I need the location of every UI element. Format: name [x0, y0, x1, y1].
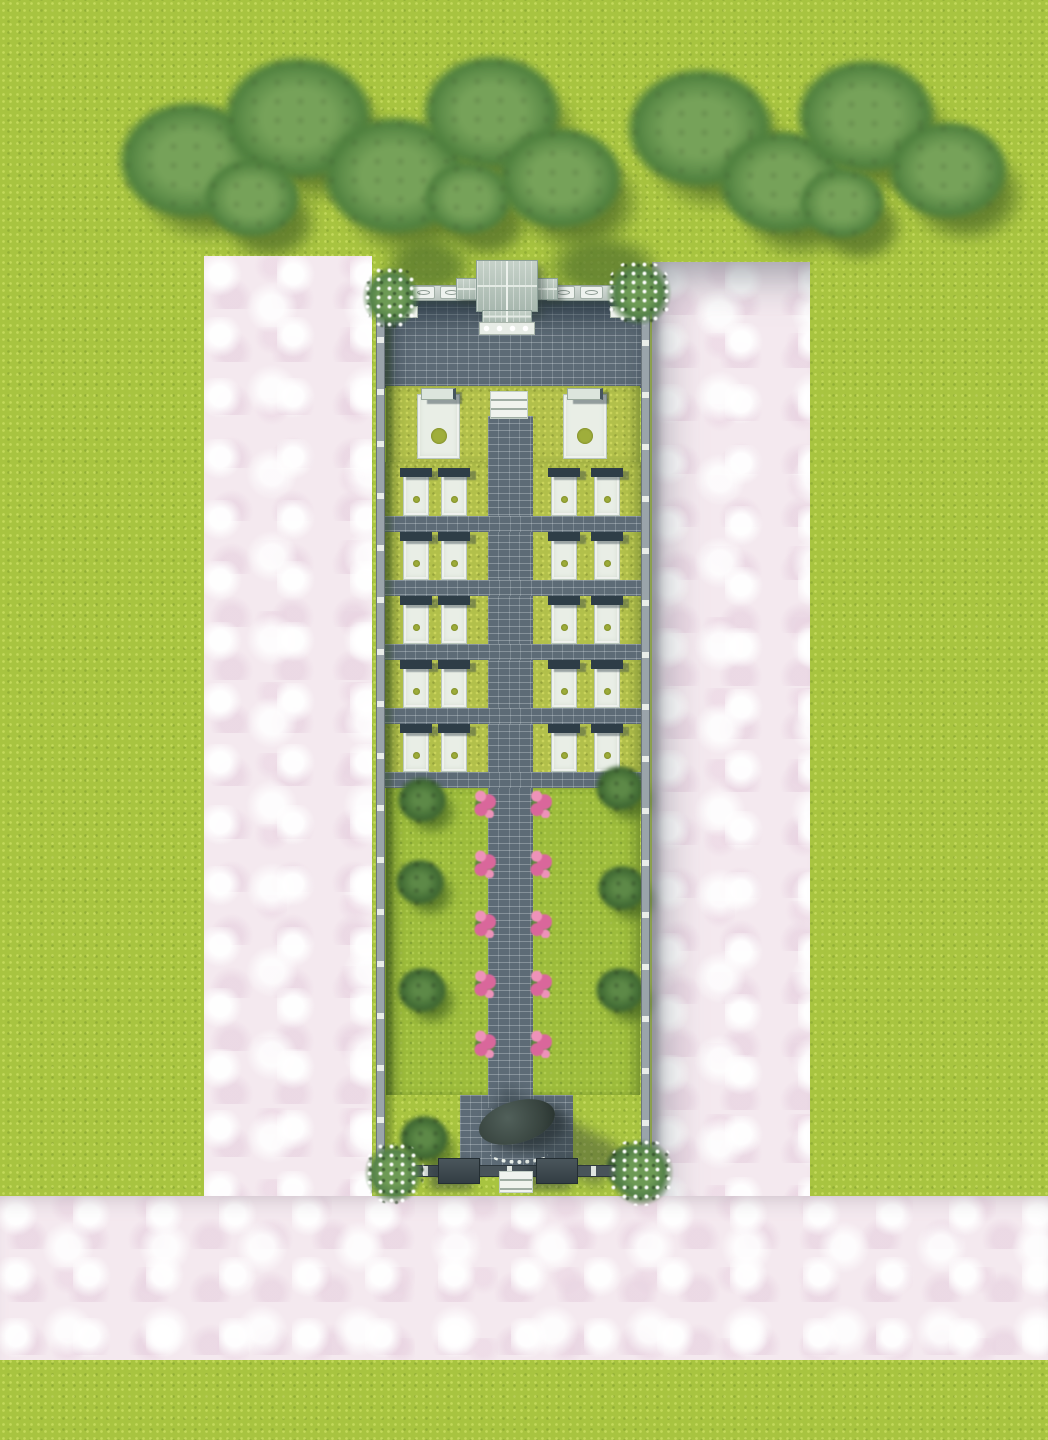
grave-dot — [413, 560, 420, 567]
grave-headstone — [548, 532, 580, 541]
grave-dot — [561, 624, 568, 631]
garden-tree — [396, 966, 448, 1014]
grave-slab — [403, 600, 429, 644]
tree-canopy — [202, 157, 302, 239]
tree-canopy — [422, 160, 514, 235]
flower-bush — [530, 1030, 552, 1058]
grave-row-strip — [384, 580, 642, 596]
grave-headstone — [400, 660, 432, 669]
monument-slab — [563, 394, 607, 459]
grave-dot — [413, 752, 420, 759]
grave-plot — [551, 532, 577, 580]
grave-dot — [604, 624, 611, 631]
grave-slab — [551, 600, 577, 644]
entrance-gate-roof — [476, 260, 538, 312]
grave-plot — [551, 468, 577, 516]
grave-dot — [451, 752, 458, 759]
tree-canopy — [886, 119, 1010, 221]
grave-headstone — [438, 596, 470, 605]
garden-tree — [394, 858, 446, 906]
grave-headstone — [548, 596, 580, 605]
garden-tree — [396, 776, 448, 824]
grave-dot — [604, 688, 611, 695]
corner-flower-bush — [364, 1142, 424, 1204]
grave-headstone — [548, 468, 580, 477]
grave-plot — [441, 468, 467, 516]
grave-slab — [403, 536, 429, 580]
grave-slab — [551, 728, 577, 772]
grave-row-strip — [384, 708, 642, 724]
grave-plot — [551, 596, 577, 644]
garden-tree — [594, 966, 646, 1014]
bottom-gate-block — [438, 1158, 480, 1184]
exit-steps — [499, 1171, 533, 1193]
pavement-bottom-walkway — [0, 1196, 1048, 1360]
entrance-steps — [490, 391, 528, 419]
perimeter-wall-right — [641, 288, 650, 1187]
monument-slab — [417, 394, 460, 459]
grave-slab — [594, 536, 620, 580]
grave-slab — [441, 472, 467, 516]
pavement-left-walkway — [204, 256, 372, 1360]
grave-headstone — [591, 724, 623, 733]
grave-plot — [594, 596, 620, 644]
grave-headstone — [548, 724, 580, 733]
grave-slab — [551, 472, 577, 516]
corner-flower-bush — [362, 266, 420, 328]
grave-slab — [441, 664, 467, 708]
grave-plot — [441, 660, 467, 708]
grave-headstone — [400, 468, 432, 477]
grave-headstone — [591, 660, 623, 669]
flower-bush — [530, 850, 552, 878]
grave-headstone — [400, 724, 432, 733]
grave-plot — [403, 596, 429, 644]
bottom-gate-block — [536, 1158, 578, 1184]
flower-bush — [474, 790, 496, 818]
flower-bush — [474, 1030, 496, 1058]
flower-bush — [474, 910, 496, 938]
monument-headstone — [421, 388, 456, 400]
grave-dot — [561, 752, 568, 759]
tree-canopy — [495, 125, 625, 232]
monument-dot — [431, 428, 447, 444]
grave-plot — [403, 532, 429, 580]
grave-slab — [594, 600, 620, 644]
grave-slab — [594, 664, 620, 708]
wall-ornament-panel — [580, 286, 603, 299]
grave-dot — [451, 688, 458, 695]
grave-row-strip — [384, 644, 642, 660]
grave-dot — [561, 688, 568, 695]
grave-dot — [413, 624, 420, 631]
grave-dot — [451, 624, 458, 631]
corner-flower-bush — [608, 1138, 674, 1206]
flower-bush — [530, 910, 552, 938]
grave-dot — [561, 560, 568, 567]
monument-dot — [577, 428, 593, 444]
grave-plot — [403, 468, 429, 516]
grave-slab — [594, 472, 620, 516]
flower-bush — [530, 790, 552, 818]
garden-tree — [594, 764, 646, 812]
flower-bush — [474, 850, 496, 878]
grave-plot — [551, 660, 577, 708]
grave-dot — [604, 496, 611, 503]
monument-plot — [417, 388, 460, 459]
corner-flower-bush — [606, 260, 672, 326]
monument-plot — [563, 388, 607, 459]
cemetery-compound — [372, 260, 654, 1195]
grave-plot — [403, 724, 429, 772]
grave-plot — [594, 468, 620, 516]
tree-canopy — [797, 166, 887, 240]
grave-headstone — [400, 596, 432, 605]
grave-headstone — [400, 532, 432, 541]
grave-slab — [403, 472, 429, 516]
grave-row-strip — [384, 516, 642, 532]
grave-headstone — [591, 596, 623, 605]
grave-plot — [441, 724, 467, 772]
grave-dot — [561, 496, 568, 503]
flower-bush — [530, 970, 552, 998]
grave-slab — [551, 664, 577, 708]
grave-slab — [403, 664, 429, 708]
grave-dot — [413, 496, 420, 503]
grave-plot — [551, 724, 577, 772]
grave-slab — [441, 728, 467, 772]
grave-plot — [594, 532, 620, 580]
grave-headstone — [591, 532, 623, 541]
grave-headstone — [438, 532, 470, 541]
grave-plot — [594, 660, 620, 708]
grave-slab — [441, 600, 467, 644]
flower-bush — [474, 970, 496, 998]
grave-slab — [551, 536, 577, 580]
grave-headstone — [548, 660, 580, 669]
perimeter-wall-left — [376, 285, 385, 1187]
grave-headstone — [591, 468, 623, 477]
grave-slab — [441, 536, 467, 580]
grave-headstone — [438, 724, 470, 733]
grave-plot — [441, 532, 467, 580]
grave-headstone — [438, 468, 470, 477]
grave-dot — [413, 688, 420, 695]
aerial-cemetery-render — [0, 0, 1048, 1440]
grave-headstone — [438, 660, 470, 669]
grave-dot — [451, 560, 458, 567]
grave-plot — [403, 660, 429, 708]
gate-porch-base — [479, 322, 535, 335]
grave-dot — [451, 496, 458, 503]
grave-dot — [604, 560, 611, 567]
grave-plot — [441, 596, 467, 644]
grave-slab — [403, 728, 429, 772]
grave-dot — [604, 752, 611, 759]
monument-headstone — [567, 388, 603, 400]
